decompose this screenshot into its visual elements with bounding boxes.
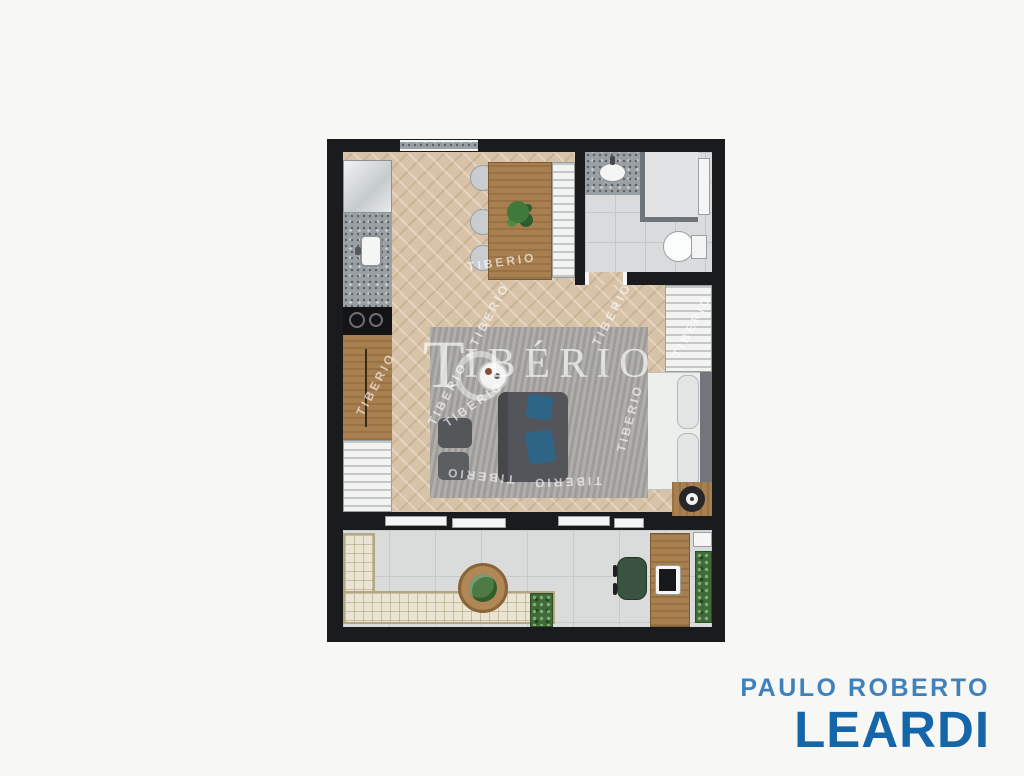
laptop-screen (659, 569, 676, 591)
sideboard (552, 162, 575, 278)
balcony-table-plant (469, 574, 497, 602)
sliding-door-panel (385, 516, 447, 526)
sliding-door-panel (614, 518, 644, 528)
faucet-icon (610, 156, 615, 165)
nightstand-tray-icon (690, 497, 694, 501)
sliding-door-panel (558, 516, 610, 526)
entry-window (400, 140, 478, 151)
burner-icon (369, 313, 383, 327)
shower (640, 152, 698, 222)
door-jamb (585, 272, 589, 285)
toilet (663, 231, 694, 262)
sofa-cushion (525, 393, 553, 420)
logo-line2: LEARDI (740, 704, 990, 755)
planter-strip (695, 551, 712, 623)
office-chair (617, 557, 647, 600)
leardi-logo: PAULO ROBERTO LEARDI (740, 674, 990, 755)
floor-plan: TIBÉRIO TIBERIO • TIBERIO TIBERIO TIBERI… (327, 139, 725, 642)
shower-glass-panel (698, 158, 710, 215)
bathroom-left-wall (575, 152, 585, 285)
utility-box (693, 532, 712, 547)
faucet-icon (355, 247, 361, 255)
logo-line1: PAULO ROBERTO (740, 674, 990, 703)
bed-pillow (677, 433, 699, 487)
table-plant (507, 201, 529, 223)
bed-pillow (677, 375, 699, 429)
chair-armrest (613, 583, 617, 595)
plant-box (530, 593, 553, 627)
sliding-door-panel (452, 518, 506, 528)
bathroom-bottom-wall (627, 272, 712, 285)
shelf-unit (343, 440, 392, 512)
sofa-cushion (525, 429, 557, 465)
sofa-backrest (498, 392, 508, 482)
watermark-text: TIBERIO (532, 474, 602, 490)
balcony-bench (343, 591, 555, 624)
headboard (700, 372, 712, 490)
toilet-tank (691, 235, 707, 259)
chair-armrest (613, 565, 617, 577)
fridge (343, 160, 392, 213)
kitchen-sink (360, 235, 382, 267)
bathroom-sink (599, 163, 626, 182)
burner-icon (349, 312, 365, 328)
